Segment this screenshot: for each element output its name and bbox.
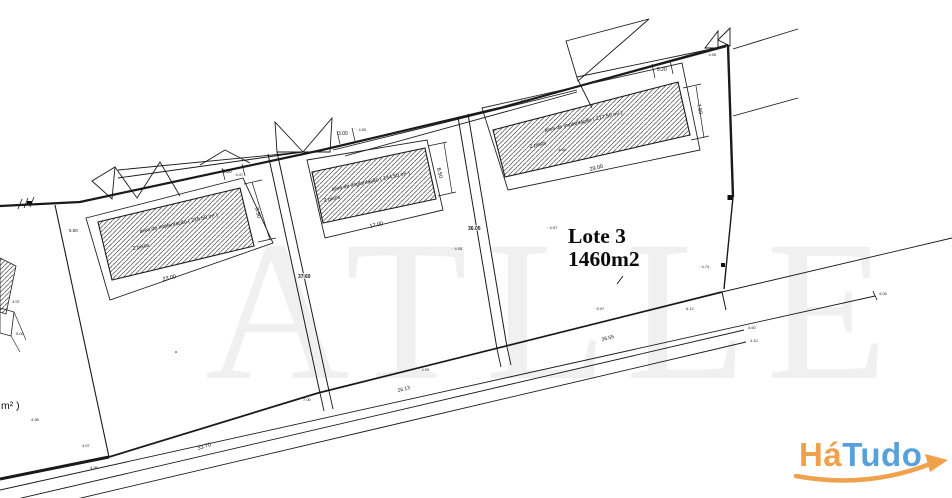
spot-elevation: · 5.07 [594, 306, 605, 311]
spot-elevation: 4.97 [12, 299, 21, 304]
lot1-width-dim: 23.00 [162, 274, 177, 283]
hatudo-logo-text: HáTudo [799, 436, 922, 473]
spot-elevation: 4.10 [750, 338, 759, 343]
survey-marker [728, 195, 733, 200]
spot-elevation: 4.05 [879, 291, 888, 296]
lot2-topgap-dim: 3.00 [338, 131, 348, 137]
lot3-topgap-dim: 5.20 [657, 67, 667, 73]
logo-part-tudo: Tudo [842, 436, 922, 473]
spot-elevation: 5.00 [16, 331, 25, 336]
logo-arrowhead-icon [925, 454, 948, 472]
spot-elevation: · 4.05 [706, 52, 717, 57]
lot2-division-dim: 37.60 [298, 274, 311, 280]
road-dim: 33.70 [197, 442, 212, 452]
hatudo-logo: HáTudo [796, 436, 948, 480]
spot-elevation: · 4.05 [452, 246, 463, 251]
lot2-height-dim: 8.50 [435, 167, 443, 179]
spot-elevation: 4.95 [90, 465, 99, 470]
spot-elevation: · 4.90 [518, 98, 529, 103]
spot-elevation: 4.98 [31, 417, 40, 422]
lot3-title: Lote 3 [568, 224, 626, 248]
spot-elevation: 4.07 [82, 443, 91, 448]
logo-part-ha: Há [799, 436, 842, 473]
spot-elevation: 6.12 [686, 306, 695, 311]
lot3-height-dim: 7.50 [695, 103, 703, 115]
background-watermark: ATLLE [205, 201, 906, 422]
spot-elevation: 7.00 [303, 397, 312, 402]
survey-marker [27, 201, 32, 204]
lot1-topgap-dim: 3.00 [222, 169, 232, 175]
spot-elevation: · 4.05 [419, 367, 430, 372]
site-plan-drawing: ATLLE [0, 0, 952, 498]
survey-marker [721, 263, 725, 267]
neighbour-structures [0, 258, 26, 352]
spot-elevation: · 4.47 [233, 172, 244, 177]
spot-elevation: · 4.97 [547, 225, 558, 230]
spot-elevation: 4.66 [558, 147, 567, 152]
spot-elevation: · 4.50 [356, 127, 367, 132]
edge-partial-label: m² ) [1, 400, 20, 412]
lot3-total-area: 1460m2 [568, 247, 640, 271]
lot1-sidegap-dim: 5.00 [69, 228, 78, 233]
lot3-division-dim: 36.05 [468, 226, 481, 232]
spot-elevation: 4.60 [748, 325, 757, 330]
spot-elevation: · 4.74 [699, 264, 710, 269]
